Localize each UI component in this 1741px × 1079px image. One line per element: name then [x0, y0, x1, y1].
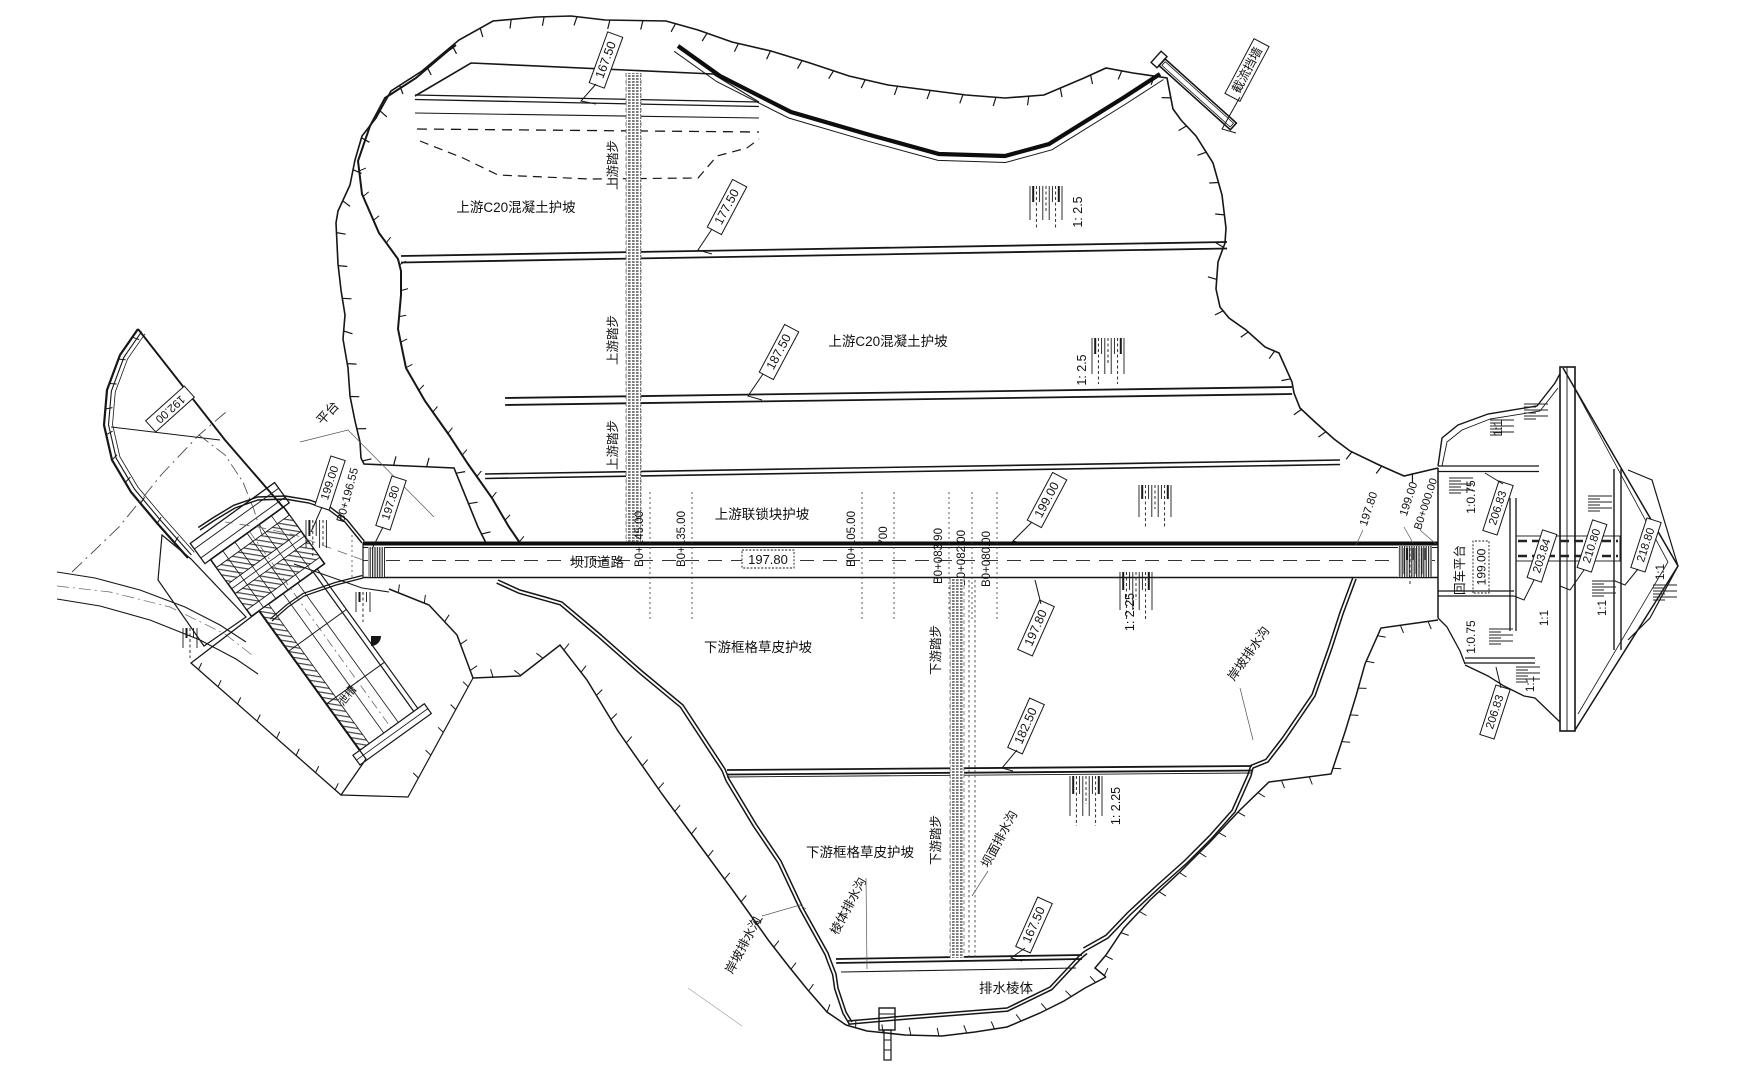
- svg-text:1: 2.5: 1: 2.5: [1071, 196, 1085, 227]
- svg-text:1:1: 1:1: [1597, 600, 1609, 616]
- svg-text:B0+105.00: B0+105.00: [846, 511, 858, 567]
- svg-text:上游踏步: 上游踏步: [606, 140, 620, 190]
- svg-text:下游框格草皮护坡: 下游框格草皮护坡: [704, 640, 812, 655]
- svg-text:1:1: 1:1: [1539, 610, 1551, 626]
- svg-text:1: 2.25: 1: 2.25: [1109, 787, 1123, 825]
- svg-text:199.00: 199.00: [1475, 548, 1489, 585]
- svg-text:上游踏步: 上游踏步: [606, 420, 620, 470]
- svg-text:1:1: 1:1: [1493, 420, 1505, 436]
- svg-text:上游联锁块护坡: 上游联锁块护坡: [715, 507, 810, 522]
- svg-text:回车平台: 回车平台: [1452, 545, 1467, 595]
- svg-text:1:0.75: 1:0.75: [1464, 480, 1478, 514]
- svg-text:1:1: 1:1: [1525, 676, 1537, 692]
- svg-text:197.80: 197.80: [748, 552, 788, 567]
- svg-text:1:0.75: 1:0.75: [1464, 620, 1478, 654]
- svg-text:700: 700: [878, 526, 890, 545]
- svg-text:上游踏步: 上游踏步: [606, 315, 620, 365]
- svg-text:B0+082.00: B0+082.00: [956, 530, 968, 586]
- svg-text:上游C20混凝土护坡: 上游C20混凝土护坡: [828, 334, 948, 349]
- svg-text:1: 2.5: 1: 2.5: [1075, 354, 1089, 385]
- svg-text:下游框格草皮护坡: 下游框格草皮护坡: [806, 845, 914, 860]
- svg-text:B0+083.90: B0+083.90: [933, 528, 945, 584]
- svg-text:1:1: 1:1: [1655, 564, 1667, 580]
- svg-text:1: 2.25: 1: 2.25: [1123, 593, 1137, 631]
- svg-text:下游踏步: 下游踏步: [929, 625, 943, 675]
- svg-text:下游踏步: 下游踏步: [929, 815, 943, 865]
- svg-text:排水棱体: 排水棱体: [979, 981, 1033, 996]
- svg-text:上游C20混凝土护坡: 上游C20混凝土护坡: [456, 200, 576, 215]
- svg-text:B0+080.00: B0+080.00: [981, 531, 993, 587]
- svg-text:B0+145.00: B0+145.00: [634, 511, 646, 567]
- svg-text:坝顶道路: 坝顶道路: [570, 555, 624, 570]
- svg-text:B0+135.00: B0+135.00: [676, 511, 688, 567]
